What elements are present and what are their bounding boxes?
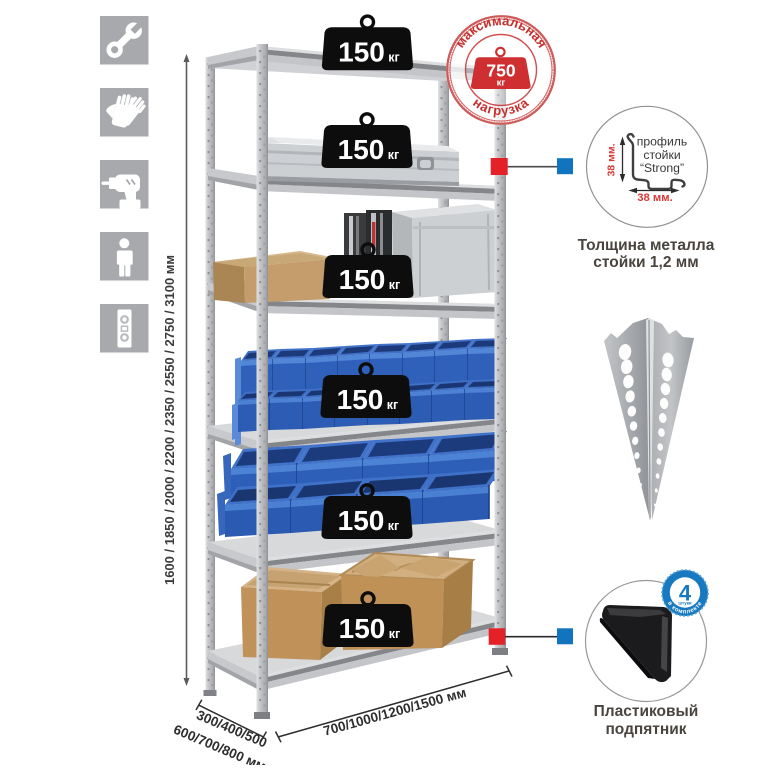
svg-text:150: 150: [338, 505, 385, 536]
svg-text:кг: кг: [497, 78, 506, 89]
svg-text:150: 150: [339, 264, 386, 295]
svg-text:150: 150: [337, 384, 384, 415]
svg-text:150: 150: [338, 36, 385, 67]
svg-text:кг: кг: [388, 50, 399, 64]
svg-text:кг: кг: [389, 278, 400, 292]
svg-text:150: 150: [338, 134, 385, 165]
svg-text:стойки 1,2 мм: стойки 1,2 мм: [593, 254, 698, 271]
svg-text:38 мм.: 38 мм.: [637, 192, 673, 204]
svg-text:профиль: профиль: [637, 135, 687, 149]
svg-text:кг: кг: [389, 627, 400, 641]
svg-text:кг: кг: [387, 398, 398, 412]
svg-text:Толщина металла: Толщина металла: [578, 237, 715, 254]
svg-text:подпятник: подпятник: [605, 721, 686, 738]
svg-text:стойки: стойки: [643, 148, 680, 162]
svg-text:Пластиковый: Пластиковый: [594, 703, 699, 720]
svg-text:кг: кг: [388, 519, 399, 533]
svg-text:штуки: штуки: [678, 601, 692, 606]
svg-text:1600 / 1850 / 2000 / 2200 / 23: 1600 / 1850 / 2000 / 2200 / 2350 / 2550 …: [162, 255, 177, 585]
svg-text:38 мм.: 38 мм.: [606, 143, 618, 176]
svg-text:“Strong”: “Strong”: [640, 161, 684, 175]
svg-text:кг: кг: [388, 148, 399, 162]
svg-text:150: 150: [339, 613, 386, 644]
